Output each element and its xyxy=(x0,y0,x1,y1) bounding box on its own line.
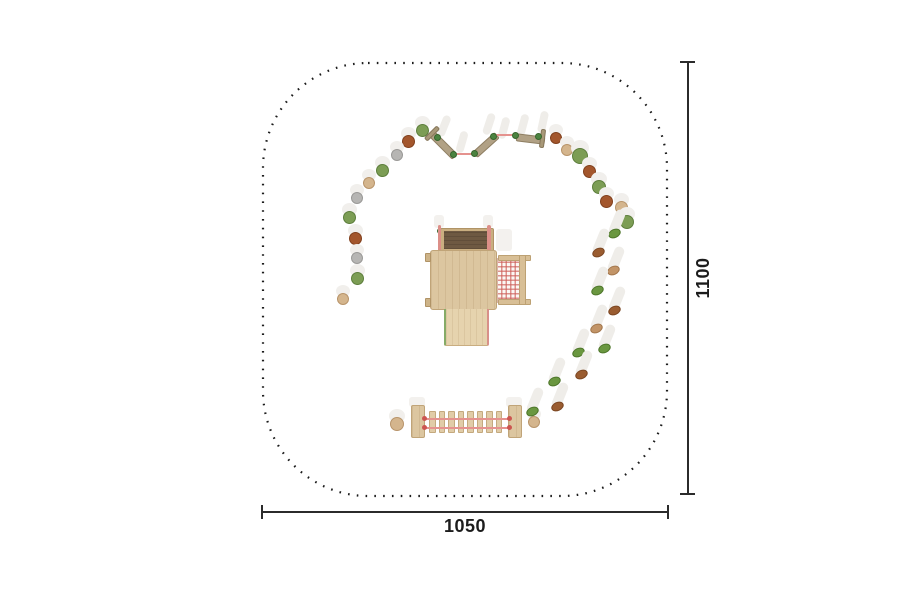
stepping-stone xyxy=(376,164,389,177)
beam-joint-dot xyxy=(471,150,478,157)
climbing-wall xyxy=(444,309,489,346)
bridge-rung xyxy=(467,411,474,433)
beam-joint-dot xyxy=(512,132,519,139)
rope-anchor-dot xyxy=(507,425,512,430)
stepping-stone xyxy=(337,293,349,305)
bridge-rung xyxy=(496,411,503,433)
width-dimension-left-tick xyxy=(261,505,263,519)
height-dimension-line xyxy=(687,62,689,495)
stepping-stone xyxy=(391,149,403,161)
bridge-rung xyxy=(439,411,446,433)
stepping-stone xyxy=(343,211,356,224)
playground-plan-diagram: 1050 1100 xyxy=(0,0,900,600)
stepping-stone xyxy=(600,195,613,208)
bridge-rung xyxy=(458,411,465,433)
bridge-platform-left xyxy=(411,405,425,438)
bridge-platform-right xyxy=(508,405,522,438)
bridge-rung xyxy=(429,411,436,433)
rope-anchor-dot xyxy=(422,416,427,421)
beam-joint-dot xyxy=(490,133,497,140)
rope-anchor-dot xyxy=(422,425,427,430)
platform-tab-bottom xyxy=(425,298,431,307)
net-rail-bottom xyxy=(498,299,531,306)
roof-post-right xyxy=(487,225,491,252)
beam-joint-dot xyxy=(434,134,441,141)
tower-platform xyxy=(430,250,497,310)
platform-tab-top xyxy=(425,253,431,262)
roof-panel xyxy=(444,231,490,249)
bridge-rope xyxy=(423,427,510,429)
stepping-stone xyxy=(390,417,404,431)
stepping-stone xyxy=(351,272,364,285)
width-dimension-line xyxy=(262,511,668,513)
bridge-rung xyxy=(448,411,455,433)
stepping-stone xyxy=(351,252,363,264)
stepping-stone xyxy=(528,416,540,428)
net-rail-side xyxy=(519,255,526,305)
height-dimension-top-tick xyxy=(680,61,695,63)
bridge-rung xyxy=(486,411,493,433)
bridge-rope xyxy=(423,418,510,420)
roof-post-left xyxy=(438,225,442,252)
width-dimension-value: 1050 xyxy=(430,516,500,537)
beam-joint-dot xyxy=(450,151,457,158)
climbing-net xyxy=(497,258,521,303)
height-dimension-value: 1100 xyxy=(693,243,713,313)
stepping-stone xyxy=(351,192,363,204)
net-rail-top xyxy=(498,255,531,262)
tower-shadow-patch xyxy=(496,229,512,251)
bridge-rung xyxy=(477,411,484,433)
height-dimension-bottom-tick xyxy=(680,493,695,495)
stepping-stone xyxy=(363,177,375,189)
stepping-stone xyxy=(349,232,362,245)
rope-anchor-dot xyxy=(507,416,512,421)
width-dimension-right-tick xyxy=(667,505,669,519)
beam-joint-dot xyxy=(535,133,542,140)
